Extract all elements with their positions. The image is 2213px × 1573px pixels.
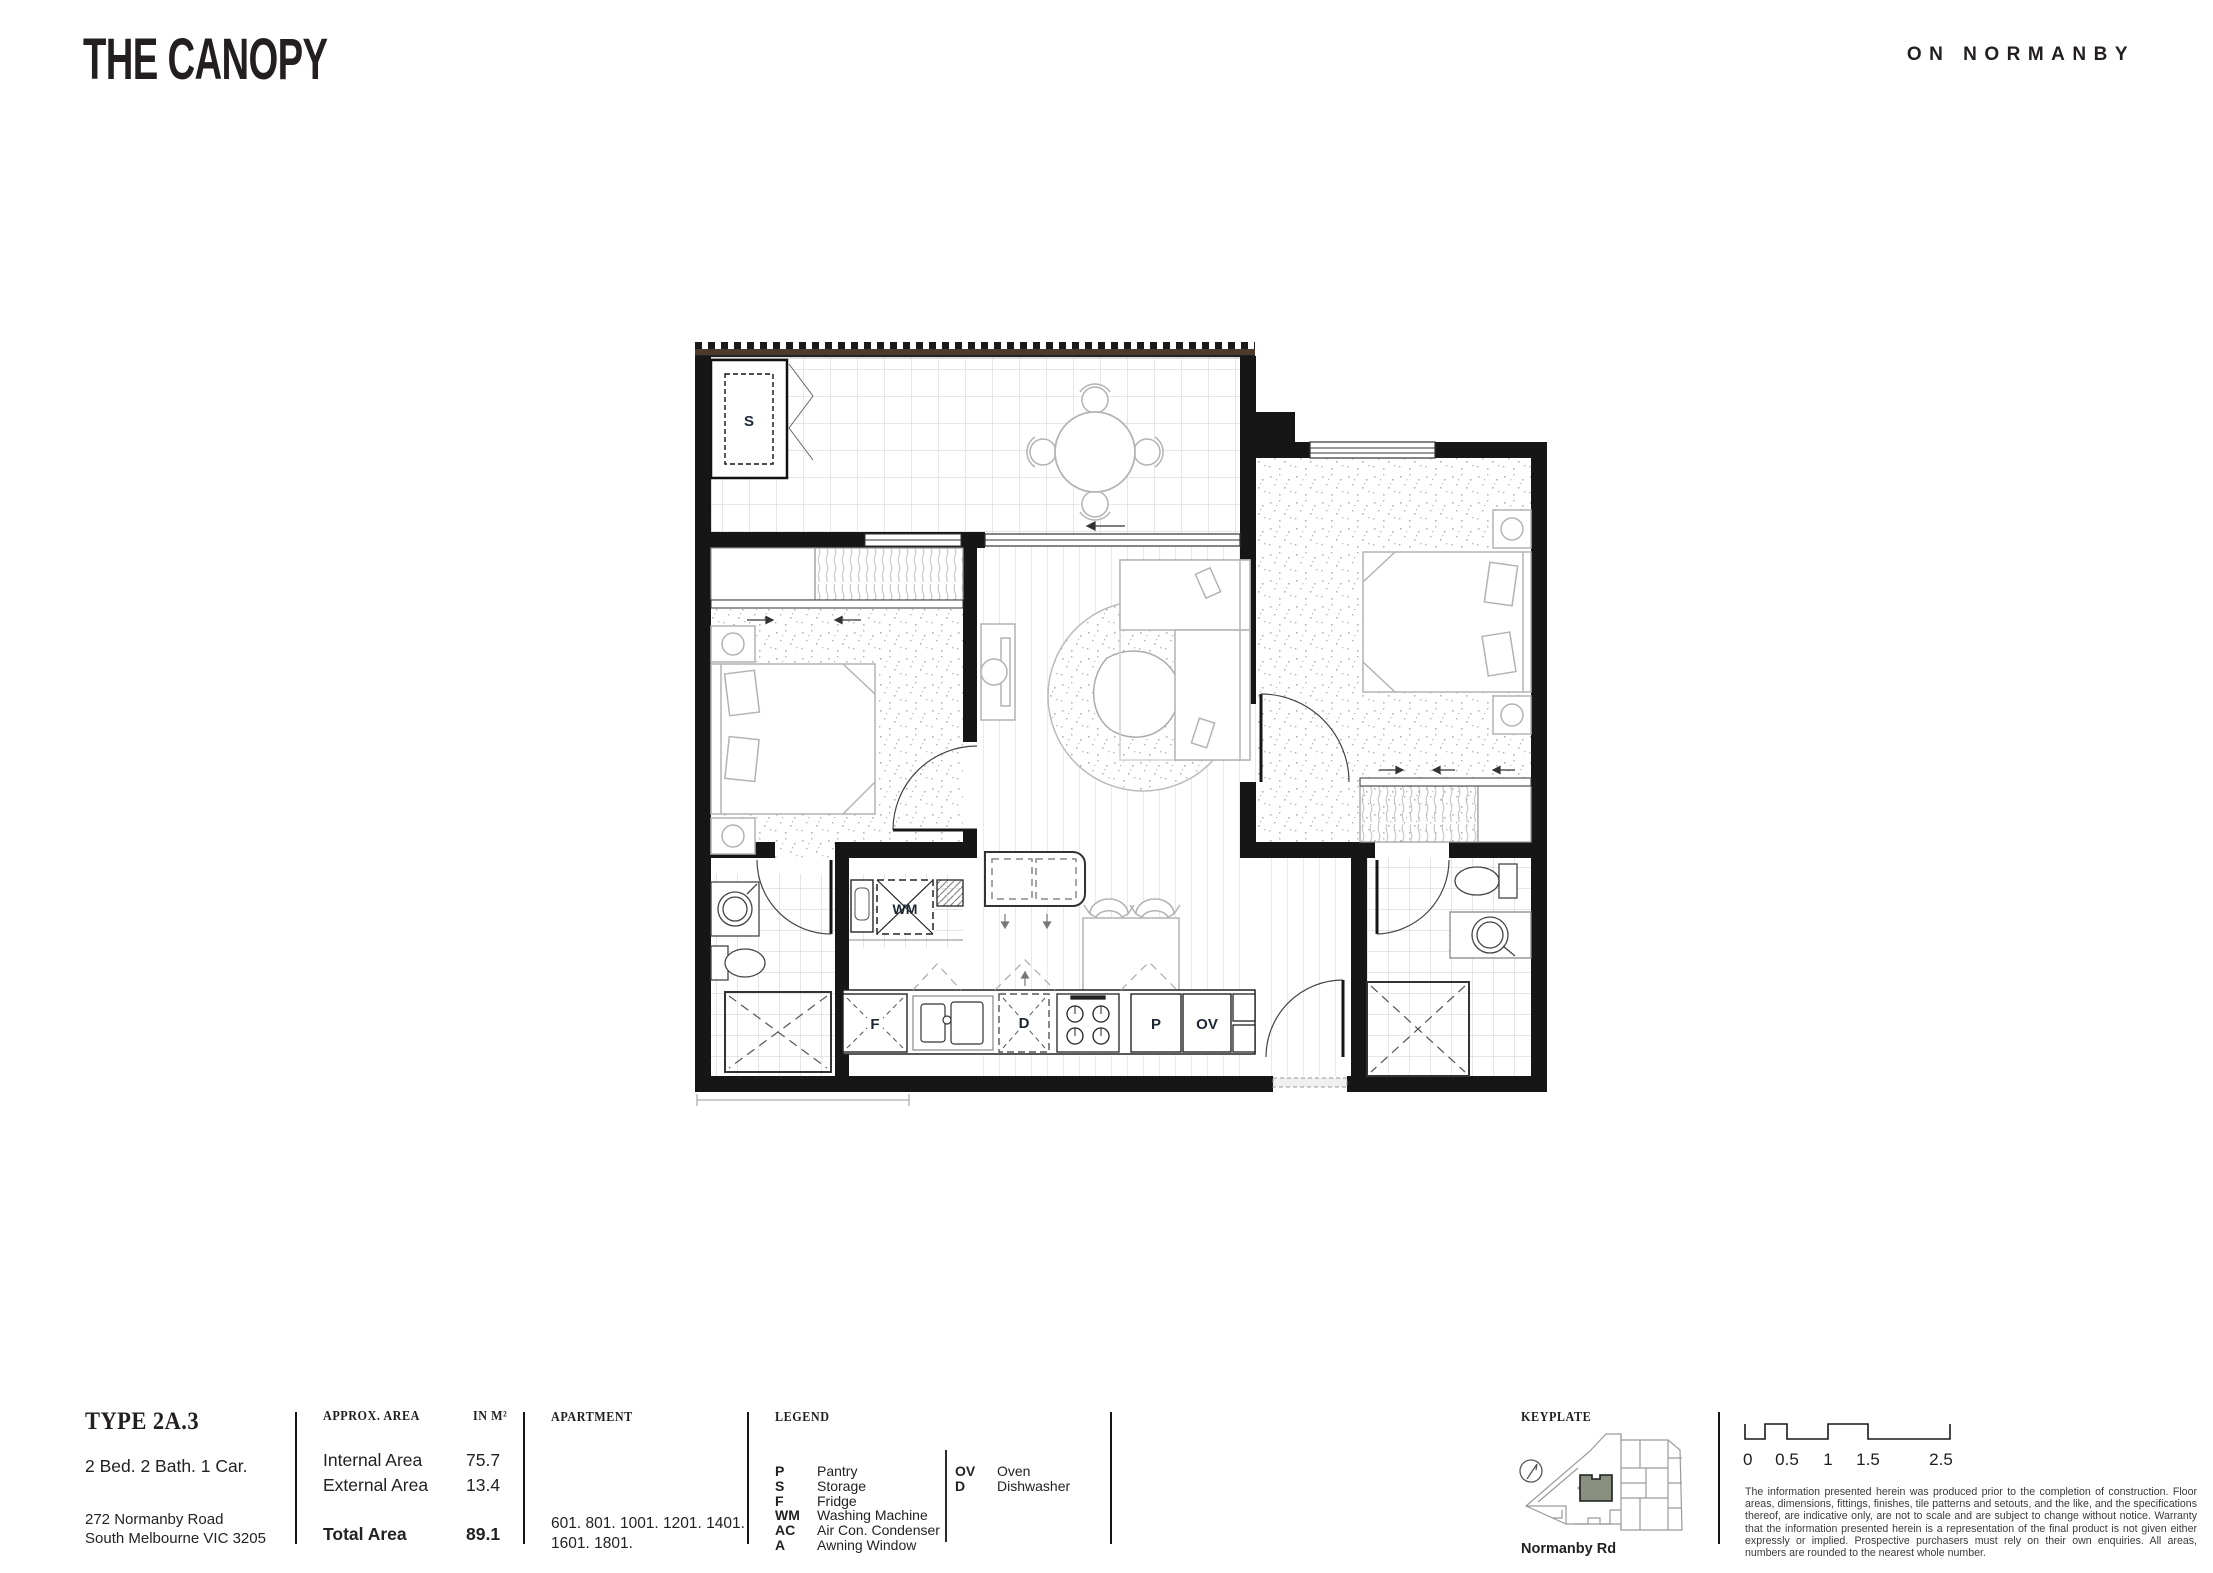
storage-label: S <box>744 413 754 430</box>
area-row-external: External Area 13.4 <box>323 1475 508 1496</box>
legend-item-awning: AAwning Window <box>775 1538 945 1553</box>
divider-4 <box>1110 1412 1112 1544</box>
bed-2 <box>1363 552 1531 692</box>
scale-tick-05: 0.5 <box>1775 1450 1799 1469</box>
ac-condenser <box>937 880 963 906</box>
balcony: S <box>695 342 1255 544</box>
washing-machine: WM <box>877 880 933 934</box>
apartment-numbers-2: 1601. 1801. <box>551 1534 745 1554</box>
type-block: TYPE 2A.3 2 Bed. 2 Bath. 1 Car. 272 Norm… <box>85 1408 266 1548</box>
keyplate-map <box>1518 1428 1708 1546</box>
linen-closet <box>711 548 815 600</box>
brand-tagline: ON NORMANBY <box>1907 44 2135 66</box>
scale-tick-1: 1 <box>1823 1450 1832 1469</box>
disclaimer-text: The information presented herein was pro… <box>1745 1486 2197 1559</box>
area-block: APPROX. AREA IN M² Internal Area 75.7 Ex… <box>323 1408 511 1545</box>
brochure-page: THE CANOPY ON NORMANBY <box>0 0 2213 1573</box>
north-arrow-icon <box>1520 1460 1542 1482</box>
fridge-label: F <box>870 1016 879 1033</box>
balustrade-rail <box>695 349 1255 355</box>
apartment-numbers-1: 601. 801. 1001. 1201. 1401. <box>551 1514 745 1534</box>
scale-bar: 0 0.5 1 1.5 2.5 <box>1743 1412 1955 1474</box>
legend-item-storage: SStorage <box>775 1479 945 1494</box>
floor-plan: S <box>695 342 1600 1114</box>
divider-5 <box>1718 1412 1720 1544</box>
washing-machine-label: WM <box>893 901 918 917</box>
fridge: F <box>843 994 907 1052</box>
legend-item-oven: OVOven <box>955 1464 1070 1479</box>
scale-tick-0: 0 <box>1743 1450 1752 1469</box>
keyplate-block: KEYPLATE <box>1521 1408 1599 1426</box>
divider-2 <box>523 1412 525 1544</box>
keyplate-road-label: Normanby Rd <box>1521 1541 1616 1557</box>
bed-bath-car: 2 Bed. 2 Bath. 1 Car. <box>85 1456 266 1477</box>
area-row-internal: Internal Area 75.7 <box>323 1450 508 1471</box>
divider-1 <box>295 1412 297 1544</box>
apartment-block: APARTMENT 601. 801. 1001. 1201. 1401. 16… <box>551 1408 745 1554</box>
keyplate-header: KEYPLATE <box>1521 1409 1591 1425</box>
legend-header: LEGEND <box>775 1409 830 1425</box>
coffee-table <box>1094 651 1180 737</box>
scale-tick-15: 1.5 <box>1856 1450 1880 1469</box>
apartment-header: APARTMENT <box>551 1409 633 1425</box>
legend-item-fridge: FFridge <box>775 1494 945 1509</box>
scale-tick-25: 2.5 <box>1929 1450 1953 1469</box>
cooktop <box>1057 994 1119 1052</box>
wardrobe-2 <box>1360 786 1478 842</box>
dishwasher: D <box>999 994 1049 1052</box>
dishwasher-label: D <box>1019 1015 1030 1032</box>
legend-item-dishwasher: DDishwasher <box>955 1479 1070 1494</box>
oven: OV <box>1183 994 1231 1052</box>
wardrobe-track <box>711 600 963 608</box>
page-title: THE CANOPY <box>83 26 327 93</box>
closet-2 <box>1478 786 1531 842</box>
wardrobe <box>815 548 963 600</box>
area-unit-header: IN M² <box>473 1408 507 1424</box>
balustrade-teeth <box>695 342 1255 349</box>
entry-threshold <box>1273 1078 1347 1087</box>
type-title: TYPE 2A.3 <box>85 1408 199 1436</box>
area-row-total: Total Area 89.1 <box>323 1524 508 1545</box>
pantry: P <box>1131 994 1181 1052</box>
tv-unit <box>981 624 1015 720</box>
wardrobe-track-2 <box>1360 778 1531 786</box>
legend-block: LEGEND PPantry SStorage FFridge WMWashin… <box>775 1408 1070 1553</box>
divider-3 <box>747 1412 749 1544</box>
legend-item-ac: ACAir Con. Condenser <box>775 1523 945 1538</box>
legend-item-washing-machine: WMWashing Machine <box>775 1508 945 1523</box>
dimension-line <box>697 1094 909 1106</box>
area-header: APPROX. AREA <box>323 1408 458 1424</box>
toilet-2 <box>1499 864 1517 898</box>
floor-plan-svg: S <box>695 342 1600 1114</box>
oven-label: OV <box>1196 1016 1218 1033</box>
address-line-2: South Melbourne VIC 3205 <box>85 1529 266 1548</box>
address-line-1: 272 Normanby Road <box>85 1510 266 1529</box>
pantry-label: P <box>1151 1016 1161 1033</box>
keyplate-highlighted-unit <box>1580 1475 1612 1501</box>
kitchen-sink <box>913 996 993 1050</box>
bed-1 <box>711 664 875 814</box>
legend-item-pantry: PPantry <box>775 1464 945 1479</box>
